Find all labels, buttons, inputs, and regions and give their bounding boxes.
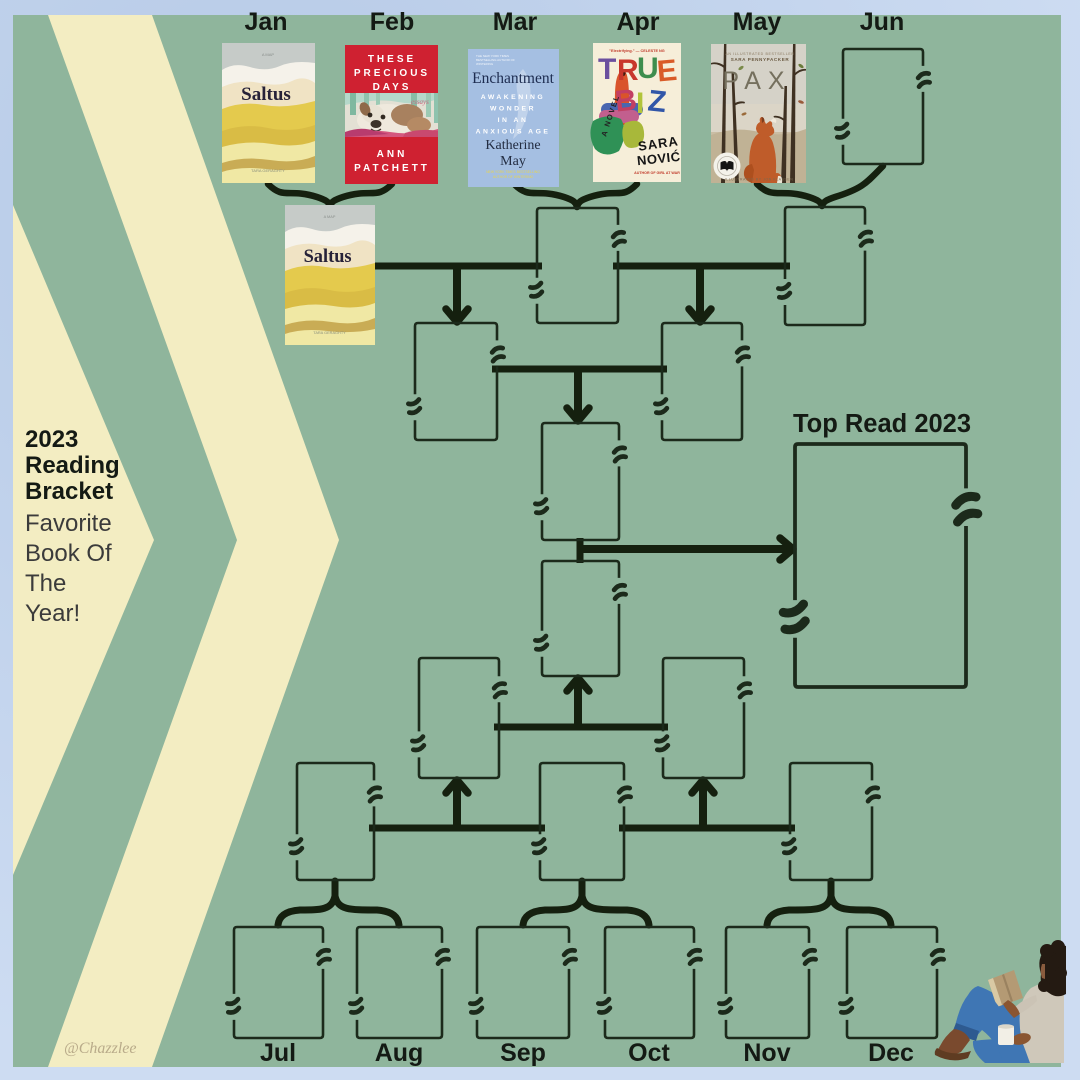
svg-text:THESE: THESE — [368, 54, 416, 65]
svg-text:The: The — [25, 570, 66, 597]
svg-text:AUTHOR OF GIRL AT WAR: AUTHOR OF GIRL AT WAR — [634, 171, 680, 175]
svg-text:TARA GERAGHTY: TARA GERAGHTY — [313, 330, 346, 335]
svg-text:Feb: Feb — [370, 8, 414, 36]
svg-text:AUTHOR OF WINTERING: AUTHOR OF WINTERING — [493, 175, 534, 179]
svg-text:E: E — [656, 54, 679, 89]
svg-text:DAYS: DAYS — [373, 82, 412, 93]
svg-text:AWAKENING: AWAKENING — [481, 94, 545, 101]
svg-text:PRECIOUS: PRECIOUS — [354, 68, 430, 79]
svg-text:Enchantment: Enchantment — [472, 70, 554, 87]
svg-text:Reading: Reading — [25, 452, 120, 479]
svg-text:AN ILLUSTRATED BESTSELLER: AN ILLUSTRATED BESTSELLER — [725, 52, 794, 56]
svg-text:Bracket: Bracket — [25, 478, 113, 505]
svg-text:Oct: Oct — [628, 1039, 670, 1067]
svg-text:PATCHETT: PATCHETT — [354, 163, 430, 174]
svg-text:A MAP: A MAP — [262, 52, 275, 57]
svg-text:Jan: Jan — [244, 8, 287, 36]
svg-text:Jul: Jul — [260, 1039, 296, 1067]
svg-text:Apr: Apr — [616, 8, 659, 36]
svg-text:Saltus: Saltus — [241, 84, 291, 105]
svg-text:Favorite: Favorite — [25, 510, 112, 537]
svg-text:Katherine: Katherine — [485, 138, 540, 153]
svg-text:Dec: Dec — [868, 1039, 914, 1067]
svg-text:A MAP: A MAP — [324, 214, 336, 219]
svg-text:Saltus: Saltus — [304, 246, 352, 267]
svg-text:IN AN: IN AN — [498, 117, 529, 124]
svg-text:TARA GERAGHTY: TARA GERAGHTY — [251, 168, 285, 173]
svg-text:Sep: Sep — [500, 1039, 546, 1067]
svg-text:PAX: PAX — [722, 67, 791, 95]
svg-text:Year!: Year! — [25, 600, 80, 627]
svg-text:Aug: Aug — [375, 1039, 424, 1067]
svg-text:2023: 2023 — [25, 426, 78, 453]
svg-text:May: May — [733, 8, 782, 36]
svg-text:SARA PENNYPACKER: SARA PENNYPACKER — [731, 57, 790, 62]
svg-text:essays: essays — [411, 98, 429, 106]
svg-text:NEW YORK TIMES BESTSELLING: NEW YORK TIMES BESTSELLING — [486, 170, 540, 174]
svg-text:T: T — [598, 53, 616, 86]
svg-text:@Chazzlee: @Chazzlee — [64, 1040, 137, 1057]
svg-text:ANN: ANN — [377, 149, 408, 160]
svg-text:Book Of: Book Of — [25, 540, 112, 567]
svg-text:WINTERING: WINTERING — [476, 62, 494, 66]
svg-text:WONDER: WONDER — [490, 106, 536, 113]
svg-text:ANXIOUS AGE: ANXIOUS AGE — [476, 129, 551, 136]
svg-text:I: I — [636, 87, 644, 120]
svg-text:Jun: Jun — [860, 8, 904, 36]
svg-text:May: May — [500, 154, 526, 169]
svg-text:Top Read 2023: Top Read 2023 — [793, 410, 971, 438]
svg-text:Nov: Nov — [743, 1039, 790, 1067]
svg-text:Mar: Mar — [493, 8, 538, 36]
svg-text:Z: Z — [646, 84, 668, 119]
svg-text:ILLUSTRATED BY JON KLASSEN: ILLUSTRATED BY JON KLASSEN — [725, 178, 794, 182]
svg-text:R: R — [617, 54, 639, 87]
